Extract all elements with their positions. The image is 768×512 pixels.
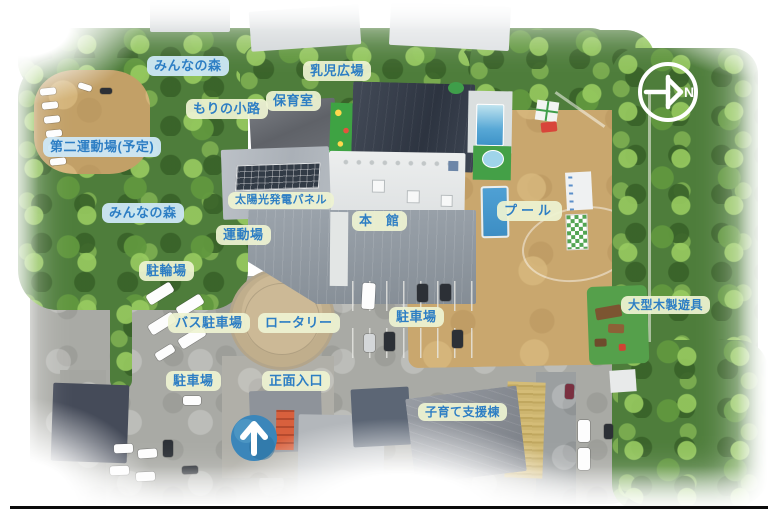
van-vehicle: [183, 396, 201, 405]
aerial-map: みんなの森乳児広場保育室もりの小路第二運動場(予定)太陽光発電パネルみんなの森プ…: [0, 0, 768, 512]
car-vehicle: [136, 472, 155, 482]
car-vehicle: [114, 444, 133, 454]
map-label-daini-undojo-yotei: 第二運動場(予定): [43, 137, 161, 157]
map-label-shomen-iriguchi: 正面入口: [262, 371, 330, 391]
compass-n-label: N: [684, 84, 694, 100]
white-tent: [535, 100, 560, 123]
map-label-churinjo: 駐輪場: [139, 261, 194, 281]
map-label-pool: プール: [497, 201, 562, 221]
car-vehicle: [578, 420, 590, 442]
house-roof: [351, 387, 412, 448]
car-vehicle: [384, 332, 395, 351]
map-label-rotary: ロータリー: [258, 313, 340, 333]
red-slide: [541, 121, 558, 133]
car-vehicle: [417, 284, 428, 302]
map-label-minna-no-mori-west: みんなの森: [102, 203, 184, 223]
green-dome: [448, 82, 464, 94]
map-label-chushajo-east: 駐車場: [389, 307, 444, 327]
car-vehicle: [565, 384, 575, 399]
map-label-nyuji-hiroba: 乳児広場: [303, 61, 371, 81]
car-vehicle: [604, 424, 613, 439]
upper-pool: [476, 104, 505, 146]
map-label-bus-chushajo: バス駐車場: [168, 313, 250, 333]
white-shed: [609, 369, 636, 393]
entrance-walkway: [330, 212, 349, 286]
map-label-kosodate-shien-to: 子育て支援棟: [418, 403, 507, 421]
distant-roof: [389, 1, 511, 51]
car-vehicle: [452, 330, 463, 348]
car-vehicle: [578, 448, 590, 470]
north-compass-icon: N: [635, 59, 701, 125]
forest-southeast: [618, 340, 768, 505]
support-center-roof: [405, 385, 527, 484]
map-label-minna-no-mori-north: みんなの森: [147, 56, 229, 76]
map-label-undojo: 運動場: [216, 225, 271, 245]
car-vehicle: [440, 284, 451, 301]
long-tent: [565, 171, 593, 210]
distant-roof: [249, 4, 362, 52]
hedge-strip: [110, 298, 132, 390]
distant-roof: [150, 2, 230, 32]
entrance-arrow-icon: [228, 411, 280, 465]
car-vehicle: [182, 466, 198, 475]
main-building-white-rooftop: [328, 151, 465, 215]
wooden-structure: [594, 338, 606, 346]
map-label-hoikushitsu: 保育室: [266, 91, 321, 111]
roof-vents: [339, 157, 459, 169]
bottom-border-line: [10, 506, 768, 509]
car-vehicle: [138, 448, 158, 458]
round-kiddie-pool: [482, 150, 504, 168]
checkered-mat: [565, 214, 588, 251]
solar-panel-array: [235, 162, 321, 191]
car-vehicle: [364, 334, 375, 352]
wooden-structure: [595, 304, 623, 320]
car-vehicle: [163, 440, 173, 457]
map-label-taiyoko-hatsuden-panel: 太陽光発電パネル: [228, 192, 334, 209]
car-vehicle: [110, 466, 129, 476]
map-label-ogata-mokusei-yugu: 大型木製遊具: [621, 296, 710, 314]
wooden-structure: [608, 324, 624, 334]
map-label-honkan: 本 館: [352, 211, 407, 231]
car-vehicle: [100, 88, 112, 94]
map-label-mori-no-komichi: もりの小路: [186, 99, 268, 119]
van-vehicle: [361, 283, 375, 310]
map-label-chushajo-south: 駐車場: [166, 371, 221, 391]
